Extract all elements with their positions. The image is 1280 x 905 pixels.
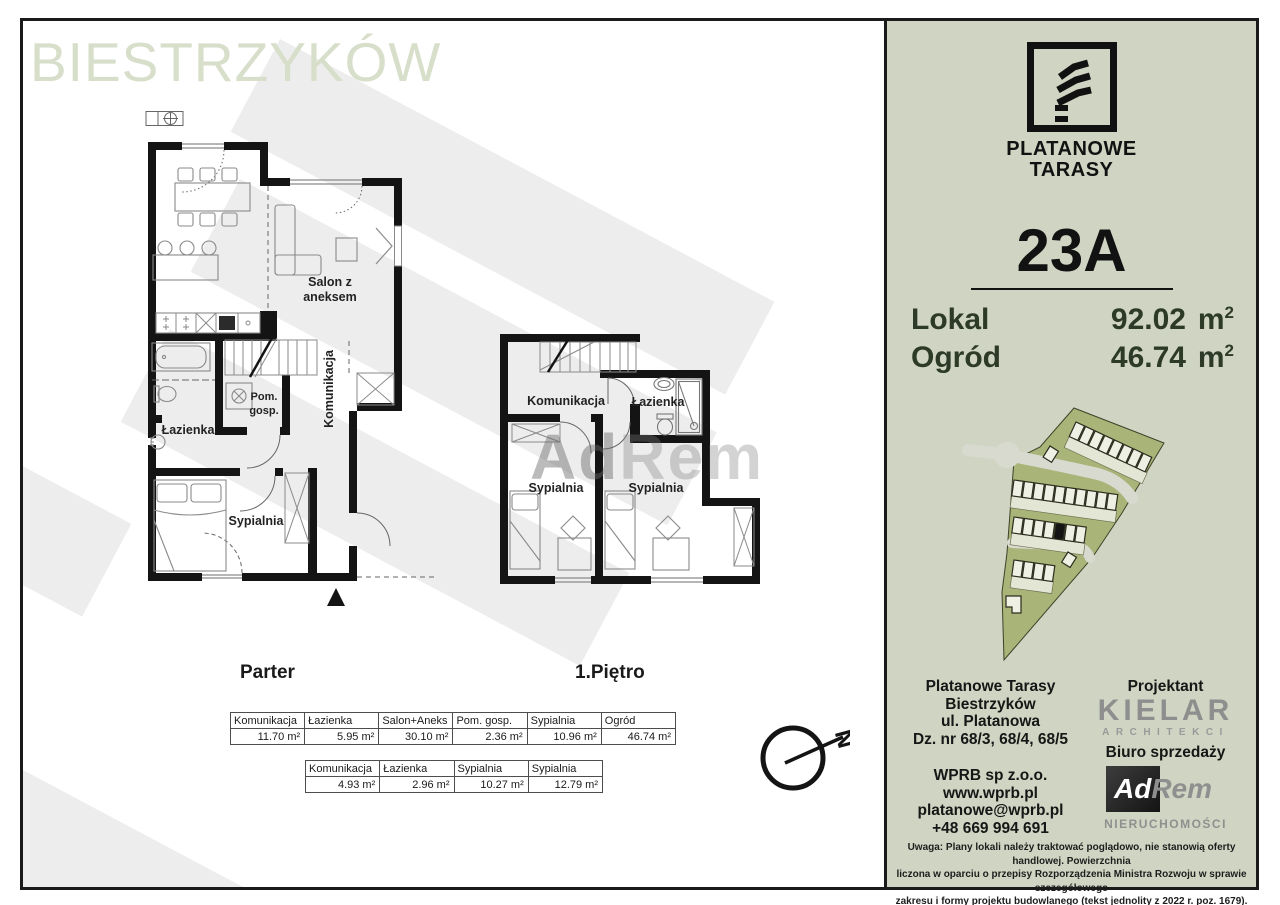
lokal-unit: m2 (1198, 303, 1234, 337)
email: platanowe@wprb.pl (898, 802, 1083, 820)
toilet-icon (154, 386, 176, 402)
company-name: WPRB sp z.o.o. (898, 767, 1083, 785)
area-value: 12.79 m² (528, 777, 602, 793)
area-value: 10.96 m² (527, 729, 601, 745)
adrem-logo-rem: Rem (1151, 773, 1212, 804)
closet-icon (357, 373, 394, 405)
brand-line-2: TARASY (887, 160, 1256, 181)
col-header: Sypialnia (528, 761, 602, 777)
adrem-subtitle: NIERUCHOMOŚCI (1088, 817, 1243, 831)
col-header: Sypialnia (454, 761, 528, 777)
bed-icon (154, 480, 226, 571)
address-line: Dz. nr 68/3, 68/4, 68/5 (898, 731, 1083, 749)
ogrod-area-row: Ogród 46.74 m2 (887, 341, 1256, 379)
lokal-label: Lokal (911, 303, 989, 337)
col-header: Komunikacja (306, 761, 380, 777)
wardrobe-icon (285, 473, 309, 543)
area-value: 4.93 m² (306, 777, 380, 793)
highlighted-unit-23a (1054, 523, 1066, 540)
site-plan-map (948, 402, 1194, 662)
kitchen-counter (156, 313, 260, 333)
pom-gosp-label-2: gosp. (249, 405, 278, 417)
col-header: Łazienka (380, 761, 454, 777)
sink-icon (654, 378, 674, 391)
komunikacja-label: Komunikacja (322, 349, 336, 428)
desk-chair-icon (653, 516, 689, 570)
salon-label-2: aneksem (303, 290, 357, 304)
col-header: Ogród (601, 713, 675, 729)
kitchen-island (153, 241, 218, 280)
divider-line (971, 288, 1173, 290)
flyer-page: BIESTRZYKÓW (0, 0, 1280, 905)
website: www.wprb.pl (898, 785, 1083, 803)
decorative-stripe (23, 369, 131, 617)
terrace-door (376, 226, 402, 266)
projektant-label: Projektant (1088, 678, 1243, 696)
unit-number: 23A (887, 219, 1256, 283)
lokal-area-row: Lokal 92.02 m2 (887, 303, 1256, 341)
area-value: 11.70 m² (231, 729, 305, 745)
entrance-arrow (327, 588, 345, 606)
stairs-parter (225, 338, 317, 377)
area-value: 10.27 m² (454, 777, 528, 793)
parter-floorplan: Salon z aneksem Łazienka Pom. gosp. Komu… (140, 128, 440, 618)
kielar-logo: KIELAR (1088, 696, 1243, 726)
address-line: ul. Platanowa (898, 713, 1083, 731)
address-line: Platanowe Tarasy (898, 678, 1083, 696)
col-header: Łazienka (305, 713, 379, 729)
biuro-sprzedazy-label: Biuro sprzedaży (1088, 744, 1243, 762)
compass-north-letter: N (829, 727, 850, 752)
washbasin-icon (151, 435, 165, 449)
brand-name: PLATANOWE TARASY (887, 139, 1256, 181)
north-compass-icon: N (750, 718, 850, 818)
pietro-floor-label: 1.Piętro (575, 662, 645, 684)
pom-gosp-label-1: Pom. (251, 391, 278, 403)
col-header: Pom. gosp. (453, 713, 527, 729)
guide-dashes (152, 186, 436, 577)
sidebar: PLATANOWE TARASY 23A Lokal 92.02 m2 Ogró… (884, 21, 1256, 887)
washing-machine-icon (226, 383, 252, 409)
parter-area-table: Komunikacja Łazienka Salon+Aneks Pom. go… (230, 712, 676, 745)
area-value: 2.96 m² (380, 777, 454, 793)
sypialnia-label: Sypialnia (229, 514, 285, 528)
disclaimer-line: Uwaga: Plany lokali należy traktować pog… (895, 841, 1248, 868)
lazienka-label: Łazienka (632, 395, 686, 409)
area-value: 2.36 m² (453, 729, 527, 745)
col-header: Komunikacja (231, 713, 305, 729)
project-title: BIESTRZYKÓW (30, 33, 441, 91)
area-value: 46.74 m² (601, 729, 675, 745)
decorative-stripe (23, 694, 251, 887)
disclaimer-line: liczona w oparciu o przepisy Rozporządze… (895, 868, 1248, 895)
ogrod-value: 46.74 (1111, 341, 1186, 375)
parter-floor-label: Parter (240, 662, 295, 684)
ogrod-unit: m2 (1198, 341, 1234, 375)
sink-icon (219, 316, 235, 330)
platanowe-tarasy-logo-icon (1027, 42, 1117, 132)
survey-marker-icon (145, 110, 185, 128)
wardrobe-icon (734, 508, 754, 566)
stairs-pietro (540, 340, 636, 372)
col-header: Salon+Aneks (379, 713, 453, 729)
kielar-subtitle: ARCHITEKCI (1088, 727, 1243, 738)
disclaimer-line: zakresu i formy projektu budowlanego (te… (895, 895, 1248, 905)
address-line: Biestrzyków (898, 696, 1083, 714)
sofa-icon (275, 205, 357, 275)
area-value: 30.10 m² (379, 729, 453, 745)
bathtub-icon (152, 343, 210, 371)
pietro-area-table: Komunikacja Łazienka Sypialnia Sypialnia… (305, 760, 603, 793)
salon-label-1: Salon z (308, 275, 352, 289)
adrem-watermark: AdRem (492, 420, 802, 494)
lazienka-label: Łazienka (162, 423, 216, 437)
legal-disclaimer: Uwaga: Plany lokali należy traktować pog… (895, 841, 1248, 905)
komunikacja-label: Komunikacja (527, 394, 606, 408)
desk-chair-icon (558, 516, 591, 570)
bed-icon (510, 491, 540, 569)
brand-line-1: PLATANOWE (887, 139, 1256, 160)
area-value: 5.95 m² (305, 729, 379, 745)
col-header: Sypialnia (527, 713, 601, 729)
phone-number: +48 669 994 691 (898, 820, 1083, 838)
lokal-value: 92.02 (1111, 303, 1186, 337)
dining-table (175, 168, 250, 226)
adrem-logo-ad: Ad (1114, 773, 1151, 804)
ogrod-label: Ogród (911, 341, 1001, 375)
bed-icon (605, 491, 635, 569)
address-contact-block: Platanowe Tarasy Biestrzyków ul. Platano… (898, 678, 1083, 837)
adrem-logo: AdRem (1088, 766, 1243, 814)
partners-block: Projektant KIELAR ARCHITEKCI Biuro sprze… (1088, 678, 1243, 831)
